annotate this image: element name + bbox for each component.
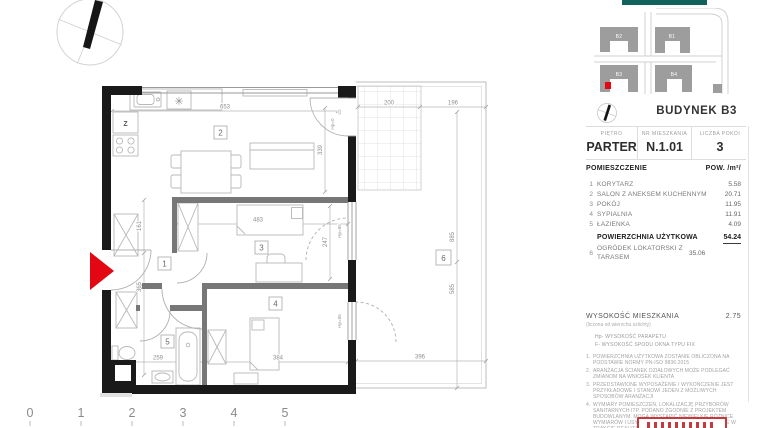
building-label-b2: B2	[616, 34, 623, 40]
footnote-text: ARANŻACJA ŚCIANEK DZIAŁOWYCH MOŻE PODLEG…	[593, 368, 746, 380]
developer-logo-marks	[647, 422, 717, 428]
info-rooms-label: LICZBA POKOI	[692, 131, 748, 137]
room-row-name: ŁAZIENKA	[597, 220, 728, 230]
footnote: 2. ARANŻACJA ŚCIANEK DZIAŁOWYCH MOŻE POD…	[586, 368, 746, 380]
wardrobe-hall-lower	[116, 292, 137, 328]
stove	[113, 135, 138, 156]
garden-label: OGRÓDEK LOKATORSKI Z TARASEM	[597, 245, 689, 262]
scale-tick: 4	[231, 406, 238, 420]
room-number: 1	[162, 260, 167, 269]
room-row-number: 5	[586, 220, 593, 230]
room-row-area: 4.09	[728, 220, 741, 230]
info-floor: PIĘTRO PARTER	[586, 127, 637, 159]
apartment-info-table: PIĘTRO PARTER NR MIESZKANIA N.1.01 LICZB…	[586, 126, 746, 160]
usable-area-row: POWIERZCHNIA UŻYTKOWA 54.24	[586, 232, 741, 244]
scale-tick: 2	[129, 406, 136, 420]
exterior-walls	[102, 86, 356, 394]
sofa	[250, 143, 314, 169]
footnote-text: POWIERZCHNIA UŻYTKOWA ZOSTANIE OBLICZONA…	[593, 354, 746, 366]
dim-396: 396	[415, 355, 426, 361]
height-value: 2.75	[726, 313, 741, 320]
dim-585: 585	[450, 283, 456, 294]
walls	[102, 86, 356, 394]
bed-room4	[250, 318, 279, 370]
info-room-count: LICZBA POKOI 3	[691, 127, 748, 159]
footnote-number: 1.	[586, 354, 593, 366]
dim-653: 653	[220, 105, 231, 111]
room-row-number: 1	[586, 180, 593, 190]
info-panel: B2 B1 B3 B4 BUDYNEK B3 PIĘTRO PARTER NR …	[580, 0, 760, 428]
dim-247: 247	[323, 236, 329, 247]
window-label-hp0: Hp=0	[330, 118, 335, 130]
info-unit-label: NR MIESZKANIA	[638, 131, 691, 137]
info-floor-value: PARTER	[586, 140, 637, 154]
scale-tick: 1	[78, 406, 85, 420]
info-rooms-value: 3	[692, 140, 748, 154]
building-title: BUDYNEK B3	[620, 105, 737, 117]
floor-plan: 653 200 196 339 161 365 483 247 259 384 …	[0, 0, 570, 428]
wardrobe-room3	[178, 203, 198, 251]
footnote: 1. POWIERZCHNIA UŻYTKOWA ZOSTANIE OBLICZ…	[586, 354, 746, 366]
developer-logo	[637, 417, 727, 428]
legend-hp: Hp- WYSOKOŚĆ PARAPETU	[595, 334, 741, 342]
dim-196: 196	[448, 101, 459, 107]
scale-bar: 0 1 2 3 4 5	[27, 393, 289, 426]
room-tag-6: 6	[436, 250, 451, 265]
footnote-text: PRZEDSTAWIONE WYPOSAŻENIE I WYKOŃCZENIE …	[593, 382, 746, 400]
footnote-number: 3.	[586, 382, 593, 400]
shaft	[115, 365, 131, 381]
dim-161: 161	[137, 220, 143, 231]
room-row-number: 2	[586, 190, 593, 200]
room-number: 3	[259, 244, 264, 253]
room-tag-1: 1	[158, 257, 171, 270]
spacer	[586, 232, 593, 244]
legend-fix: F- WYSOKOŚĆ SPODU OKNA TYPU FIX	[595, 342, 741, 350]
room-number: 4	[273, 300, 278, 309]
room-row: 5 ŁAZIENKA 4.09	[586, 220, 741, 230]
dim-259: 259	[153, 356, 164, 362]
room-row-area: 5.58	[728, 180, 741, 190]
scale-tick: 3	[180, 406, 187, 420]
windows	[348, 98, 356, 340]
building-b1	[655, 27, 690, 53]
room-tag-5: 5	[161, 335, 174, 348]
mini-compass-icon	[594, 100, 620, 126]
room-list: POMIESZCZENIE POW. /m²/ 1 KORYTARZ 5.58 …	[586, 165, 741, 262]
room-row-number: 4	[586, 210, 593, 220]
room-row: 1 KORYTARZ 5.58	[586, 180, 741, 190]
apartment-height-section: WYSOKOŚĆ MIESZKANIA 2.75 (liczona od wie…	[586, 313, 741, 349]
height-label: WYSOKOŚĆ MIESZKANIA	[586, 313, 679, 320]
floorplan-page: 653 200 196 339 161 365 483 247 259 384 …	[0, 0, 760, 428]
building-label-b3: B3	[616, 72, 623, 78]
building-b4	[655, 65, 692, 92]
room-tag-2: 2	[214, 126, 227, 139]
scale-tick: 0	[27, 406, 34, 420]
room-list-header: POMIESZCZENIE POW. /m²/	[586, 165, 741, 172]
dim-483: 483	[253, 218, 264, 224]
dim-885: 885	[450, 231, 456, 242]
room-list-header-name: POMIESZCZENIE	[586, 165, 647, 172]
building-label-b4: B4	[671, 72, 678, 78]
window-label-hp85-room4: Hp=85	[337, 314, 342, 328]
room-tag-3: 3	[255, 241, 268, 254]
dim-365: 365	[137, 281, 143, 292]
usable-area-label: POWIERZCHNIA UŻYTKOWA	[597, 232, 723, 244]
dim-22: 22	[337, 109, 342, 115]
room-number: 6	[441, 254, 446, 263]
panel-right-rule	[748, 126, 749, 402]
dim-384: 384	[273, 356, 284, 362]
room-row-number: 3	[586, 200, 593, 210]
building-annex	[713, 84, 722, 93]
dining-table	[171, 151, 241, 193]
room-number: 2	[218, 129, 223, 138]
footnote-number: 2.	[586, 368, 593, 380]
garden-door-swing-dashed	[356, 302, 396, 342]
room-row-name: SYPIALNIA	[597, 210, 725, 220]
dim-339: 339	[318, 144, 324, 155]
toilet	[112, 346, 135, 360]
north-compass-icon	[46, 0, 135, 76]
building-label-b1: B1	[669, 34, 676, 40]
garden-terrace	[356, 82, 486, 388]
garden-row: 6 OGRÓDEK LOKATORSKI Z TARASEM 35.06	[586, 245, 741, 262]
fridge-label: Z	[123, 121, 128, 128]
height-note: (liczona od wierzchu szlichty)	[586, 322, 741, 328]
garden-area-value: 35.06	[689, 249, 705, 259]
brand-bar	[622, 0, 707, 5]
room-tag-4: 4	[269, 297, 282, 310]
burner-icon: ✳	[174, 96, 183, 108]
wardrobe-room4	[208, 330, 226, 364]
room-row-name: KORYTARZ	[597, 180, 728, 190]
footnote: 3. PRZEDSTAWIONE WYPOSAŻENIE I WYKOŃCZEN…	[586, 382, 746, 400]
balcony-door-swing	[310, 98, 348, 136]
dresser-room4	[234, 373, 258, 384]
bed-room3	[237, 205, 303, 235]
dim-200: 200	[384, 101, 395, 107]
room-row-area: 11.91	[725, 210, 741, 220]
room-row: 3 POKÓJ 11.95	[586, 200, 741, 210]
desk-room3	[256, 254, 302, 282]
window-label-hp85-room3: Hp=85	[337, 224, 342, 238]
legend: Hp- WYSOKOŚĆ PARAPETU F- WYSOKOŚĆ SPODU …	[595, 334, 741, 349]
room3-door-swing	[177, 253, 207, 283]
usable-area-value: 54.24	[723, 232, 741, 244]
bathtub	[176, 328, 200, 385]
info-unit-number: NR MIESZKANIA N.1.01	[637, 127, 691, 159]
room-number: 5	[165, 338, 170, 347]
bathroom-sink	[152, 371, 173, 383]
room-row: 2 SALON Z ANEKSEM KUCHENNYM 20.71	[586, 190, 741, 200]
room-row-area: 20.71	[725, 190, 741, 200]
room-row-area: 11.95	[725, 200, 741, 210]
info-floor-label: PIĘTRO	[586, 131, 637, 137]
height-row: WYSOKOŚĆ MIESZKANIA 2.75	[586, 313, 741, 320]
room-row: 4 SYPIALNIA 11.91	[586, 210, 741, 220]
footnote-number: 4.	[586, 402, 593, 428]
room-list-header-area: POW. /m²/	[706, 165, 741, 172]
info-unit-value: N.1.01	[638, 140, 691, 154]
entrance-arrow-icon	[90, 252, 114, 290]
room-row-number: 6	[586, 249, 593, 259]
scale-tick: 5	[282, 406, 289, 420]
room-row-name: SALON Z ANEKSEM KUCHENNYM	[597, 190, 725, 200]
room-row-name: POKÓJ	[597, 200, 725, 210]
apartment-location-marker	[605, 82, 611, 89]
